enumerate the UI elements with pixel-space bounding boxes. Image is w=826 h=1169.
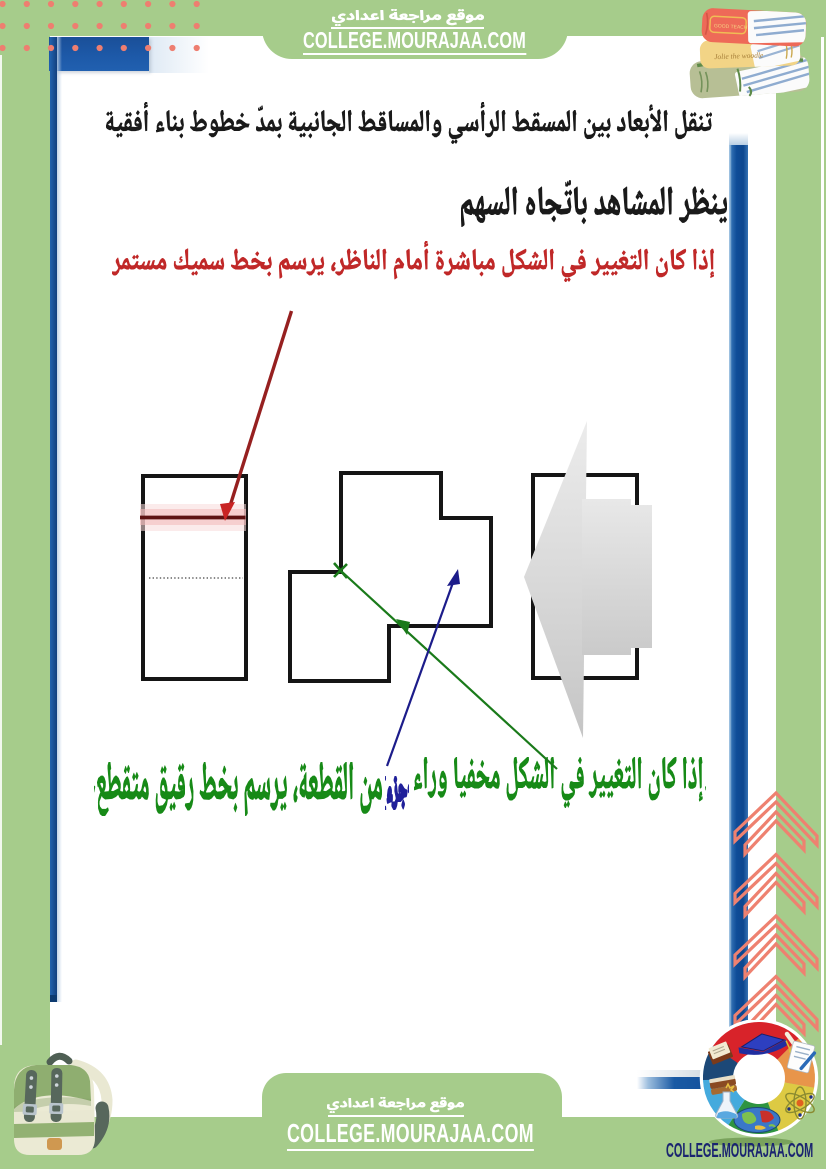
- svg-text:Jolie the woodle: Jolie the woodle: [714, 50, 764, 61]
